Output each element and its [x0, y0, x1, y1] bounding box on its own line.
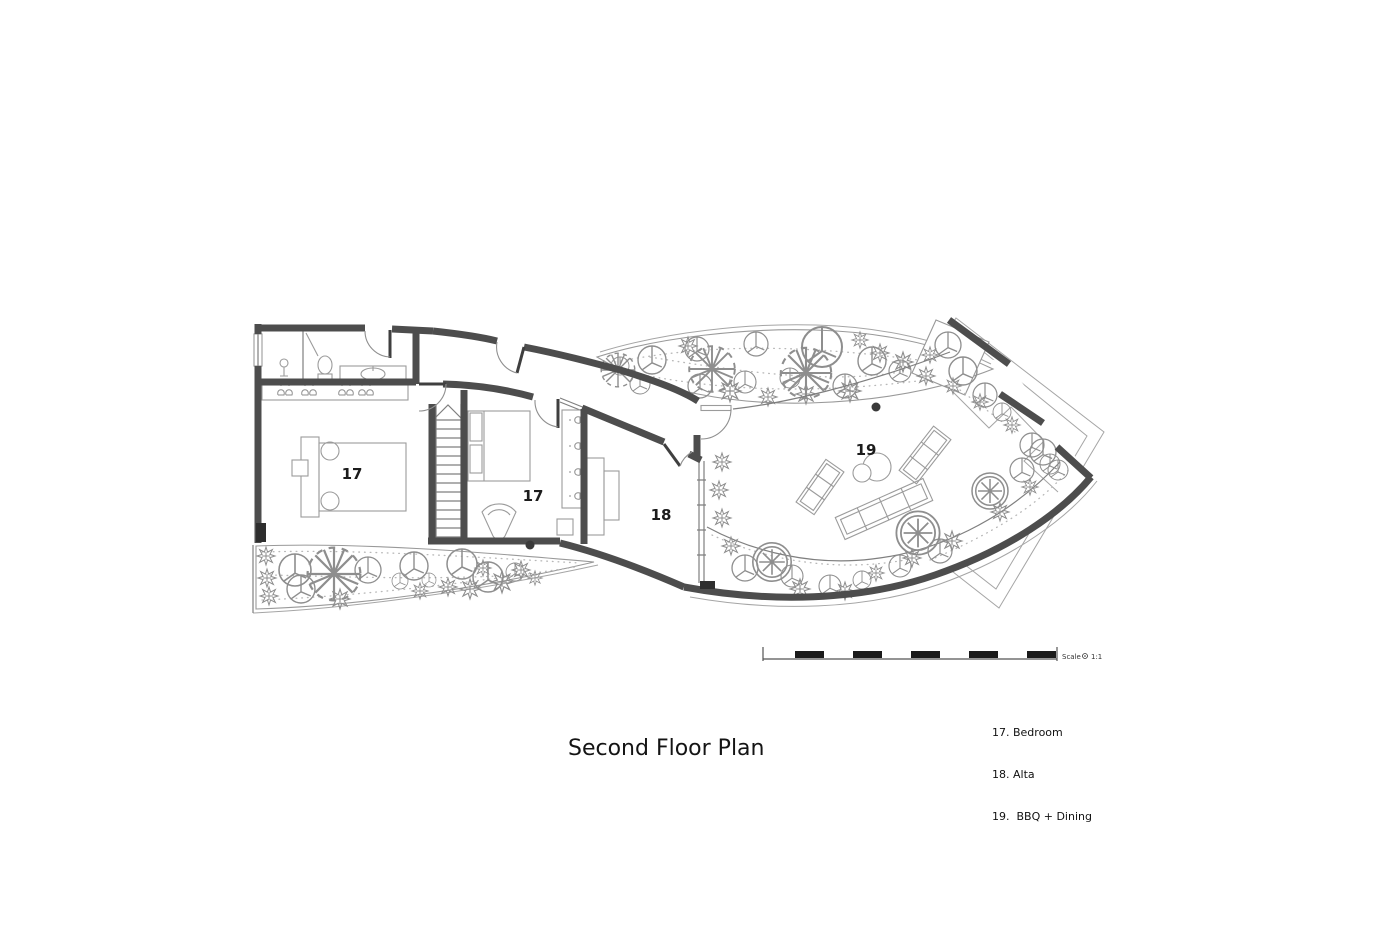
room-label-alta: 18	[651, 506, 672, 524]
staircase	[434, 404, 462, 541]
scale-bar: Scale 1:1	[763, 647, 1102, 661]
legend-item-bbq-dining: 19. BBQ + Dining	[992, 810, 1092, 824]
legend: 17. Bedroom 18. Alta 19. BBQ + Dining	[992, 698, 1092, 838]
desk	[604, 471, 619, 520]
bed	[468, 411, 530, 481]
nightstand	[292, 460, 308, 476]
cabinet	[587, 458, 604, 535]
alta-furniture	[557, 458, 619, 535]
floor-plan-canvas: 17 17 18 19 Scale 1:1 Second Floor Plan …	[0, 0, 1390, 927]
toilet-icon	[318, 356, 332, 374]
scale-ratio: 1:1	[1091, 653, 1102, 661]
scale-label: Scale	[1062, 653, 1081, 661]
room-label-bedroom-left: 17	[342, 465, 363, 483]
stool	[853, 464, 871, 482]
pillow	[470, 413, 482, 441]
pillow	[470, 445, 482, 473]
column	[872, 403, 881, 412]
shower-icon	[280, 359, 288, 367]
room-label-bbq-dining: 19	[856, 441, 877, 459]
legend-item-bedroom: 17. Bedroom	[992, 726, 1092, 740]
bedroom-right-furniture	[468, 410, 583, 539]
bathroom	[280, 329, 406, 382]
wardrobe-left	[262, 384, 408, 400]
legend-item-alta: 18. Alta	[992, 768, 1092, 782]
stair-direction-arrow	[434, 405, 462, 419]
pillow	[321, 492, 339, 510]
room-label-bedroom-right: 17	[523, 487, 544, 505]
headboard	[301, 437, 319, 517]
floor-plan-drawing: 17 17 18 19 Scale 1:1	[0, 0, 1390, 927]
column	[526, 541, 535, 550]
pillow	[321, 442, 339, 460]
plan-title: Second Floor Plan	[568, 736, 765, 761]
